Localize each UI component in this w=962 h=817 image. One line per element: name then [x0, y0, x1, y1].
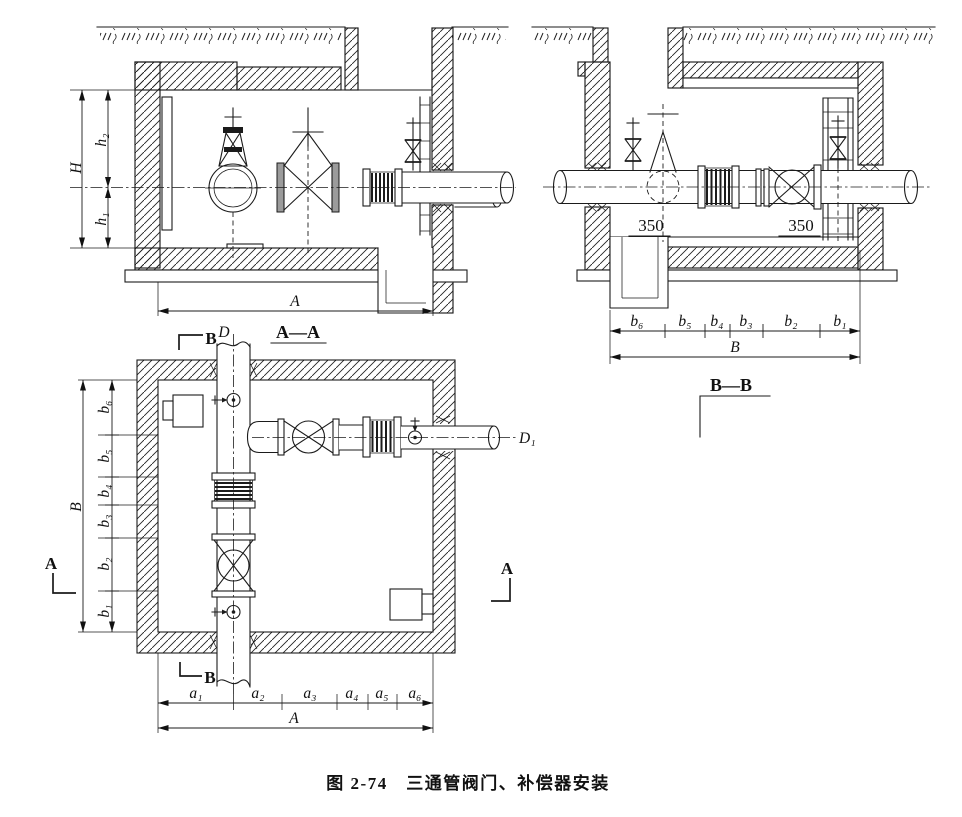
dim-label-b6: b₆ [630, 313, 643, 330]
dim-label-B: B [68, 502, 85, 512]
dim-label-a6: a₆ [408, 685, 421, 702]
dim-label-h1: h₁ [93, 212, 110, 225]
drain-valve [405, 118, 421, 170]
section-marker-A-right: A [491, 559, 514, 601]
corner-box-bottomright [390, 589, 433, 620]
dim-label-b4: b₄ [710, 313, 723, 330]
dim-label-b2: b₂ [784, 313, 798, 330]
offset-350-left: 350 [638, 216, 664, 235]
section-aa-view: H h₂ h₁ A A—A [68, 27, 516, 343]
dim-label-b6: b₆ [96, 400, 113, 413]
section-aa-title: A—A [271, 322, 326, 343]
section-marker-A-left: A [45, 554, 76, 593]
dim-label-a5: a₅ [375, 685, 388, 702]
figure-caption: 图 2-74 三通管阀门、补偿器安装 [326, 773, 609, 793]
dim-label-b1: b₁ [96, 604, 113, 617]
dim-label-a3: a₃ [303, 685, 316, 702]
dim-label-b3: b₃ [739, 313, 752, 330]
gate-valve [277, 108, 339, 256]
engineering-drawing-canvas: H h₂ h₁ A A—A [0, 0, 962, 817]
plan-view: D D₁ B B A A b₆ b₅ b₄ b₃ b₂ b₁ B a₁ a [45, 324, 536, 733]
branch-pipe-D1 [248, 417, 500, 457]
dim-label-a2: a₂ [251, 685, 265, 702]
dim-label-b4: b₄ [96, 484, 113, 497]
svg-text:A: A [45, 554, 58, 573]
dim-label-A-total: A [288, 710, 299, 727]
section-marker-B-bottom: B [180, 662, 216, 687]
offset-350-labels: 350 350 [629, 216, 820, 236]
pipe-label-D1: D₁ [518, 430, 536, 447]
pipe-label-D: D [217, 324, 229, 341]
tee-branch-valve [205, 108, 261, 258]
drain-valve-left [625, 118, 641, 170]
dim-label-a4: a₄ [345, 685, 358, 702]
sump-pit [610, 237, 668, 308]
svg-text:B—B: B—B [710, 375, 752, 395]
dim-label-b5: b₅ [96, 449, 113, 462]
dim-label-b2: b₂ [96, 557, 113, 571]
dim-label-H: H [68, 162, 85, 175]
figure-2-74-drawing: H h₂ h₁ A A—A [0, 0, 962, 817]
section-bb-title: B—B [700, 375, 770, 437]
dimension-a-chain: a₁ a₂ a₃ a₄ a₅ a₆ A [158, 653, 433, 733]
svg-text:A: A [501, 559, 514, 578]
ladder [420, 97, 430, 235]
svg-text:A—A: A—A [276, 322, 320, 342]
svg-text:B: B [204, 668, 215, 687]
corner-box-topleft [163, 395, 203, 427]
dim-label-b1: b₁ [833, 313, 846, 330]
section-marker-B-top: B [179, 329, 217, 350]
dim-label-a1: a₁ [189, 685, 202, 702]
dim-label-b3: b₃ [96, 514, 113, 527]
sump-pit [378, 248, 433, 313]
dim-label-b5: b₅ [678, 313, 691, 330]
offset-350-right: 350 [788, 216, 814, 235]
svg-text:B: B [205, 329, 216, 348]
section-bb-view: 350 350 b₆ b₅ b₄ b₃ b₂ b₁ B B—B [532, 27, 935, 437]
dim-label-h2: h₂ [93, 133, 110, 147]
dim-label-B: B [730, 339, 740, 356]
dim-label-A: A [289, 293, 300, 310]
